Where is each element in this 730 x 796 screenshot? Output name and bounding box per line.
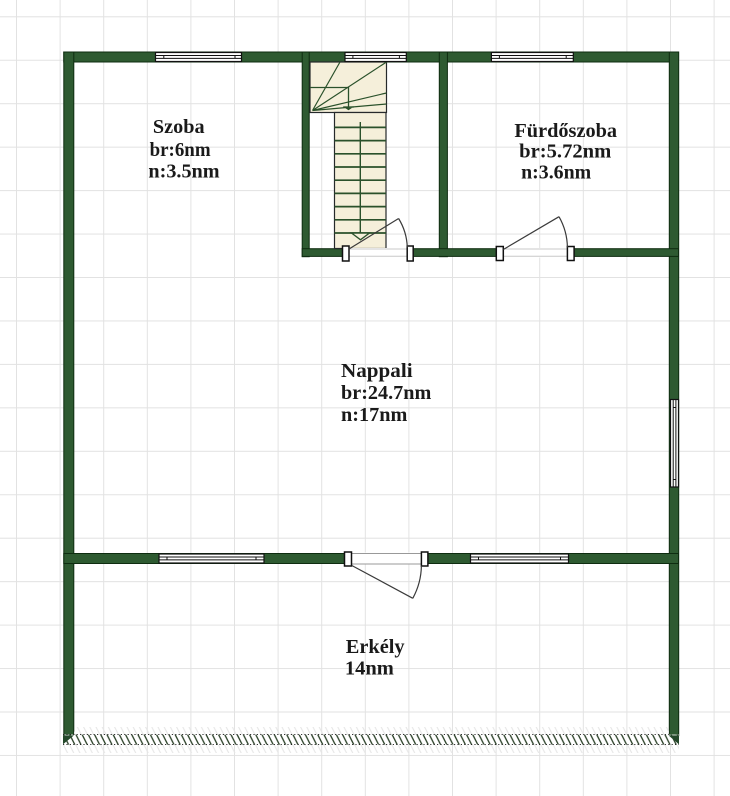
svg-text:n:17nm: n:17nm (341, 404, 407, 426)
svg-text:Fürdőszoba: Fürdőszoba (514, 120, 617, 142)
svg-text:Szoba: Szoba (153, 116, 205, 138)
svg-text:br:24.7nm: br:24.7nm (341, 382, 431, 404)
svg-text:Erkély: Erkély (346, 636, 405, 658)
svg-text:14nm: 14nm (345, 657, 394, 679)
svg-text:Nappali: Nappali (341, 360, 413, 382)
svg-text:br:5.72nm: br:5.72nm (519, 141, 611, 163)
svg-text:n:3.5nm: n:3.5nm (148, 160, 219, 182)
svg-text:br:6nm: br:6nm (150, 139, 211, 161)
svg-text:n:3.6nm: n:3.6nm (521, 162, 591, 184)
